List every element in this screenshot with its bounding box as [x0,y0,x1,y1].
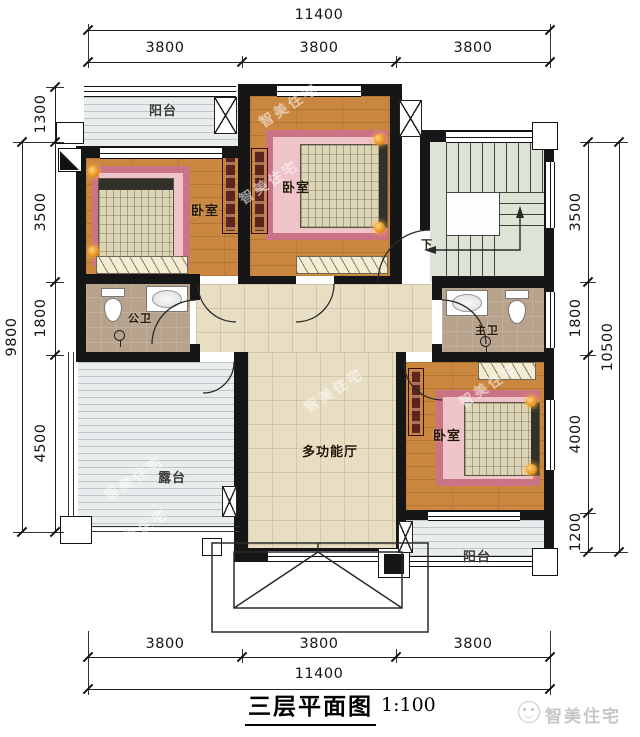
stair-landing [446,192,500,236]
dim-left-seg-3: 4500 [33,415,49,471]
sink-icon [446,290,488,316]
dimension-line [619,142,620,552]
room-label-bath-master: 主卫 [455,322,519,338]
dim-top-seg-1: 3800 [242,40,396,56]
brand-face-icon [518,701,540,723]
sink-icon [146,286,188,312]
wall [76,352,198,362]
wall [234,352,248,548]
dim-top-seg-2: 3800 [396,40,550,56]
window [446,131,534,143]
wall [432,344,442,362]
ac-platform-icon [398,521,413,553]
dim-left-seg-2: 1800 [33,290,49,346]
pier-column-core [384,554,404,574]
dim-bottom-seg-2: 3800 [396,636,550,652]
dim-left-total: 9800 [4,309,20,365]
dimension-line [55,87,56,532]
lamp-icon [374,222,385,233]
room-label-balcony-top: 阳台 [118,100,208,119]
wall [86,276,198,284]
floor-plan-sheet: 阳台 卧室 卧室 公卫 主卫 多功能厅 露台 卧室 阳台 下 智美住宅 智美住宅… [0,0,640,737]
lamp-icon [374,134,385,145]
ac-platform-icon [222,486,237,517]
dimension-line [88,62,550,63]
dim-left-seg-1: 3500 [33,184,49,240]
dimension-line [88,30,550,31]
dim-right-total: 10500 [600,319,616,375]
pilaster [532,122,558,150]
closet-hatch [96,256,188,274]
bed-pillow [379,145,387,227]
dim-bottom-total: 11400 [88,666,550,682]
stair-direction-label: 下 [417,236,437,252]
drawing-scale: 1:100 [381,694,436,716]
brand-name: 智美住宅 [545,702,621,727]
dim-right-seg-1: 1800 [568,290,584,346]
corner-column [60,516,92,544]
wall [442,352,544,362]
dim-right-seg-0: 3500 [568,184,584,240]
light-fixture-icon [114,330,125,341]
corridor-floor [196,284,432,352]
wall [432,276,442,300]
wall [334,276,390,284]
lamp-icon [526,396,537,407]
dim-left-seg-0: 1300 [33,86,49,142]
dimension-line [22,142,23,532]
toilet-tank-icon [505,290,529,299]
window [545,162,555,228]
bed [98,178,174,264]
wall [420,142,430,230]
room-label-bath-public: 公卫 [108,310,172,326]
wall [250,276,296,284]
wall [432,276,544,288]
window [268,550,390,562]
terrace-floor [78,362,234,528]
lamp-icon [88,166,99,177]
ac-platform-icon [399,100,422,137]
window [100,147,222,159]
dim-bottom-seg-1: 3800 [242,636,396,652]
porch-column [202,538,222,556]
lamp-icon [526,464,537,475]
dim-right-seg-2: 4000 [568,406,584,462]
room-label-balcony-bottom: 阳台 [432,546,522,565]
dim-top-seg-0: 3800 [88,40,242,56]
ac-platform-icon [214,97,237,134]
room-label-bedroom-left: 卧室 [160,200,250,219]
section-marker [58,148,82,172]
window [428,511,520,521]
pilaster [56,122,84,144]
dim-bottom-seg-0: 3800 [88,636,242,652]
closet-hatch [296,256,388,274]
wall [76,146,86,362]
stair-treads-right [500,192,544,236]
dimension-line [588,142,589,552]
toilet-tank-icon [101,288,125,297]
terrace-parapet [68,352,74,530]
room-label-bedroom-br: 卧室 [402,425,492,444]
window [545,292,555,348]
dim-top-total: 11400 [88,7,550,23]
window [545,400,555,470]
dimension-line [88,657,550,658]
room-label-hall: 多功能厅 [282,441,378,460]
stair-treads-upper [446,142,544,192]
corner-column [532,548,558,576]
section-marker-triangle [60,151,79,170]
balcony-railing [84,86,236,97]
drawing-title: 三层平面图 [245,687,376,726]
brand-logo: 智美住宅 [518,700,638,726]
bed-pillow [99,179,173,190]
